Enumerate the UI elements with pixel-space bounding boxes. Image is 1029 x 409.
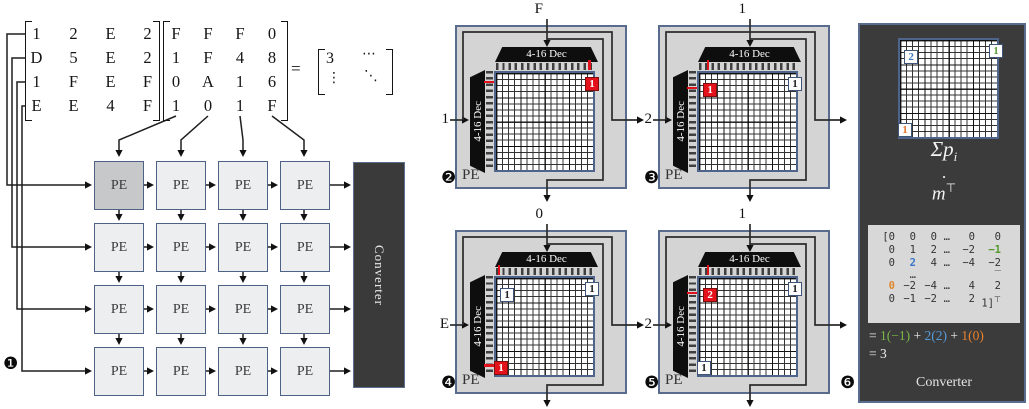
formula-m-transpose: m⊤	[860, 181, 1028, 205]
equals-sign: =	[291, 59, 301, 79]
pe-box: PE	[94, 223, 144, 272]
matrix-cell: 1	[224, 70, 256, 94]
result-value-line: = 3	[869, 346, 887, 362]
ellipsis-v: ⋮	[327, 70, 341, 86]
pe-box: PE	[218, 347, 268, 396]
m-matrix-cell: 0	[950, 231, 975, 244]
m-matrix-cell: ‾	[975, 271, 1001, 280]
grid-mark: 2	[904, 50, 918, 64]
m-matrix-cell	[937, 271, 950, 280]
bracket	[386, 49, 393, 95]
pe-box: PE	[218, 161, 268, 210]
pe-panel-step-3: 1 2 4-16 Dec 4-16 Dec 11 PE	[638, 1, 854, 213]
m-matrix-cell: −1	[895, 293, 916, 306]
m-matrix-cell	[950, 271, 975, 280]
m-matrix-cell: −1	[975, 244, 1001, 257]
m-matrix-cell: 4	[950, 280, 975, 293]
result-equation: = 1(−1) + 2(2) + 1(0)	[869, 328, 984, 344]
matrix-cell: 4	[224, 46, 256, 70]
converter-panel-body: 121 Σpi · m⊤ [000…00012…−2−1024…−4−2…‾0−…	[858, 23, 1026, 403]
bracket	[281, 21, 288, 121]
m-matrix-cell: −2	[916, 293, 937, 306]
equation-term: +	[910, 328, 924, 343]
grid-mark: 1	[898, 123, 912, 137]
m-matrix-row: 012…−2−1	[875, 244, 1015, 257]
step-badge-4: ❹	[441, 375, 456, 392]
m-matrix-cell: 2	[975, 280, 1001, 293]
matrix-cell: 0	[192, 94, 224, 118]
matrix-cell: F	[224, 22, 256, 46]
matrix-cell: 1	[18, 70, 55, 94]
m-matrix-cell: 0	[895, 231, 916, 244]
matrix-cell: 4	[92, 94, 129, 118]
m-matrix-cell: …	[937, 293, 950, 306]
pe-box: PE	[280, 161, 330, 210]
matrix-cell: E	[92, 22, 129, 46]
pe-panel-wires	[435, 1, 651, 213]
step-badge-5: ❺	[644, 375, 659, 392]
pe-box: PE	[156, 347, 206, 396]
m-matrix-cell: −4	[916, 280, 937, 293]
m-matrix-cell	[875, 271, 895, 280]
matrix-cell: A	[192, 70, 224, 94]
converter-label: Converter	[371, 245, 387, 306]
m-matrix-cell: …	[937, 231, 950, 244]
m-matrix-cell	[916, 271, 937, 280]
matrix-cell: E	[55, 94, 92, 118]
pe-box: PE	[218, 285, 268, 334]
m-matrix-row: …‾	[875, 271, 1015, 280]
step-badge-2: ❷	[441, 170, 456, 187]
matrix-cell: 1	[224, 94, 256, 118]
m-matrix-cell: 2	[950, 293, 975, 306]
m-matrix: [000…00012…−2−1024…−4−2…‾0−2−4…420−1−2…2…	[868, 225, 1020, 323]
equation-term: 1(0)	[961, 328, 984, 343]
grid-mark: 1	[989, 44, 1003, 58]
pe-panel-wires	[435, 206, 651, 409]
matrix-cell: E	[92, 70, 129, 94]
m-matrix-cell: 2	[916, 244, 937, 257]
matrix-cell: E	[92, 46, 129, 70]
pe-box: PE	[156, 223, 206, 272]
matrix-cell: E	[18, 94, 55, 118]
m-matrix-cell: 4	[916, 257, 937, 270]
m-matrix-cell: 0	[875, 280, 895, 293]
ellipsis-d: ⋱	[364, 68, 378, 84]
result-value: 3	[326, 50, 334, 68]
bracket	[153, 21, 160, 121]
pe-panel-step-4: 0 E 4-16 Dec 4-16 Dec 111 PE	[435, 206, 651, 409]
m-matrix-cell: …	[895, 271, 916, 280]
pe-box: PE	[280, 285, 330, 334]
matrix-b: FFF01F480A16101F	[160, 22, 288, 118]
equation-term: +	[947, 328, 961, 343]
figure-systolic-array-diagram: 12E2D5E21FEFEE4F FFF01F480A16101F = 3 ⋯ …	[0, 0, 1029, 409]
pe-panel-wires	[638, 1, 854, 213]
converter-panel: 121 Σpi · m⊤ [000…00012…−2−1024…−4−2…‾0−…	[838, 0, 1029, 409]
pe-box: PE	[94, 347, 144, 396]
matrix-a: 12E2D5E21FEFEE4F	[18, 22, 166, 118]
pe-box: PE	[94, 285, 144, 334]
m-matrix-cell: 0	[916, 231, 937, 244]
converter-panel-label: Converter	[860, 375, 1028, 391]
bracket	[318, 49, 325, 95]
matrix-cell: F	[55, 70, 92, 94]
step-badge-1: ❶	[3, 356, 18, 373]
pe-box: PE	[94, 161, 144, 210]
equation-term: 1(−1)	[880, 328, 910, 343]
matrix-cell: F	[192, 22, 224, 46]
equation-term: 2(2)	[924, 328, 947, 343]
m-matrix-cell: 1]⊤	[975, 293, 1001, 306]
m-matrix-cell: −4	[950, 257, 975, 270]
m-matrix-row: 024…−4−2	[875, 257, 1015, 270]
converter-block: Converter	[353, 162, 405, 388]
ellipsis-h: ⋯	[362, 46, 376, 62]
m-matrix-row: 0−1−2…21]⊤	[875, 293, 1015, 306]
m-matrix-cell: …	[937, 257, 950, 270]
matrix-cell: F	[192, 46, 224, 70]
m-matrix-cell: 0	[875, 293, 895, 306]
pe-panel-step-2: F 1 4-16 Dec 4-16 Dec 1 PE	[435, 1, 651, 213]
m-matrix-cell: …	[937, 280, 950, 293]
matrix-cell: 5	[55, 46, 92, 70]
matrix-cell: 2	[55, 22, 92, 46]
equation-term: =	[869, 328, 880, 343]
m-matrix-cell: …	[937, 244, 950, 257]
pe-box: PE	[280, 347, 330, 396]
m-matrix-row: 0−2−4…42	[875, 280, 1015, 293]
formula-sum: Σpi	[860, 137, 1028, 165]
bracket	[163, 21, 170, 121]
pe-box: PE	[280, 223, 330, 272]
m-matrix-cell: [0	[875, 231, 895, 244]
pe-box: PE	[156, 161, 206, 210]
m-matrix-cell: −2	[895, 280, 916, 293]
m-matrix-cell: −2	[950, 244, 975, 257]
m-matrix-cell: 0	[875, 244, 895, 257]
matrix-cell: D	[18, 46, 55, 70]
m-matrix-cell: 0	[875, 257, 895, 270]
pe-box: PE	[156, 285, 206, 334]
summary-grid: 121	[898, 38, 999, 139]
step-badge-3: ❸	[644, 170, 659, 187]
m-matrix-cell: 0	[975, 231, 1001, 244]
matrix-cell: 1	[18, 22, 55, 46]
bracket	[25, 21, 32, 121]
m-matrix-cell: 1	[895, 244, 916, 257]
m-matrix-row: [000…00	[875, 231, 1015, 244]
pe-panel-wires	[638, 206, 854, 409]
pe-panel-step-5: 1 2 4-16 Dec 4-16 Dec 211 PE	[638, 206, 854, 409]
pe-box: PE	[218, 223, 268, 272]
